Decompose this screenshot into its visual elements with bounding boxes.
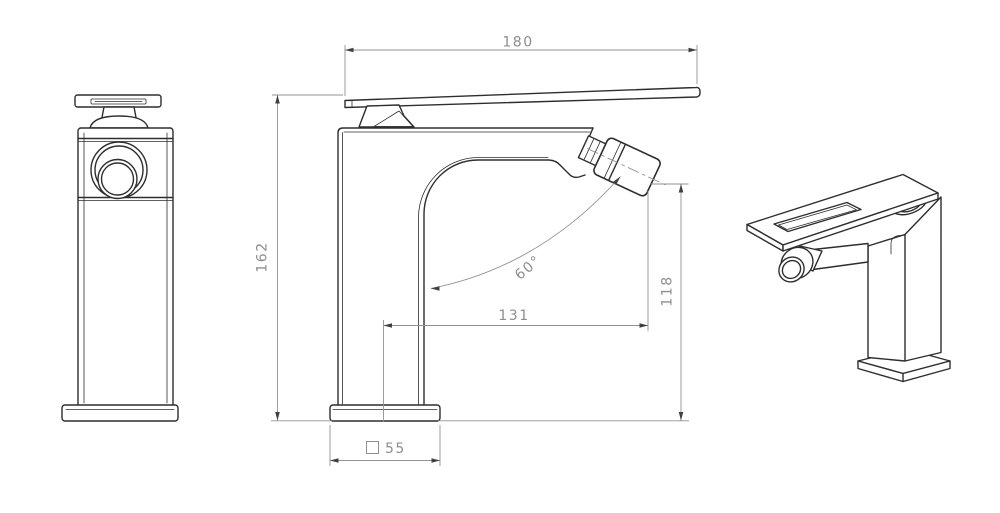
body-inner-contour	[424, 160, 585, 405]
dim-55-label: 55	[385, 441, 406, 457]
side-view	[62, 95, 178, 421]
arrow-down	[275, 412, 280, 421]
dimension-spray-angle: 60°	[431, 177, 621, 291]
front-view	[330, 87, 700, 421]
arrow-up	[275, 95, 280, 104]
dim-180-label: 180	[502, 35, 533, 51]
dim-60-label: 60°	[512, 252, 545, 283]
technical-drawing-canvas: 180 162 118 131	[0, 0, 1000, 513]
square-symbol	[367, 442, 379, 454]
dim-131-label: 131	[498, 308, 529, 324]
arrow-left	[384, 323, 393, 328]
body-outline	[338, 128, 593, 405]
handle-plate-edge	[75, 95, 161, 107]
arrow-down	[679, 412, 684, 421]
dimension-handle-length: 180	[345, 35, 697, 97]
faucet-technical-drawing: 180 162 118 131	[0, 0, 1000, 513]
dimension-base-width: 55	[330, 425, 440, 466]
handle-dome	[90, 116, 148, 128]
arrow-right	[432, 458, 441, 463]
arrow-right	[689, 48, 698, 53]
dimension-handle-reach: 131	[384, 191, 649, 422]
arrow-left	[345, 48, 354, 53]
dimension-spout-outlet-height: 118	[651, 184, 689, 421]
arrow-left	[330, 458, 339, 463]
dim-162-label: 162	[255, 241, 271, 272]
arrow-right	[640, 323, 649, 328]
lever-stem	[359, 105, 414, 127]
body-inner-highlight	[419, 158, 549, 406]
base-plate-front	[330, 405, 440, 421]
base-plate	[62, 405, 178, 421]
arrow-arc-start	[431, 286, 440, 291]
dim-118-label: 118	[660, 275, 676, 306]
spray-head-group	[575, 129, 674, 204]
perspective-view	[747, 175, 950, 382]
arrow-up	[679, 184, 684, 193]
dimension-body-height: 162	[255, 95, 344, 421]
aerator-face	[98, 160, 137, 199]
